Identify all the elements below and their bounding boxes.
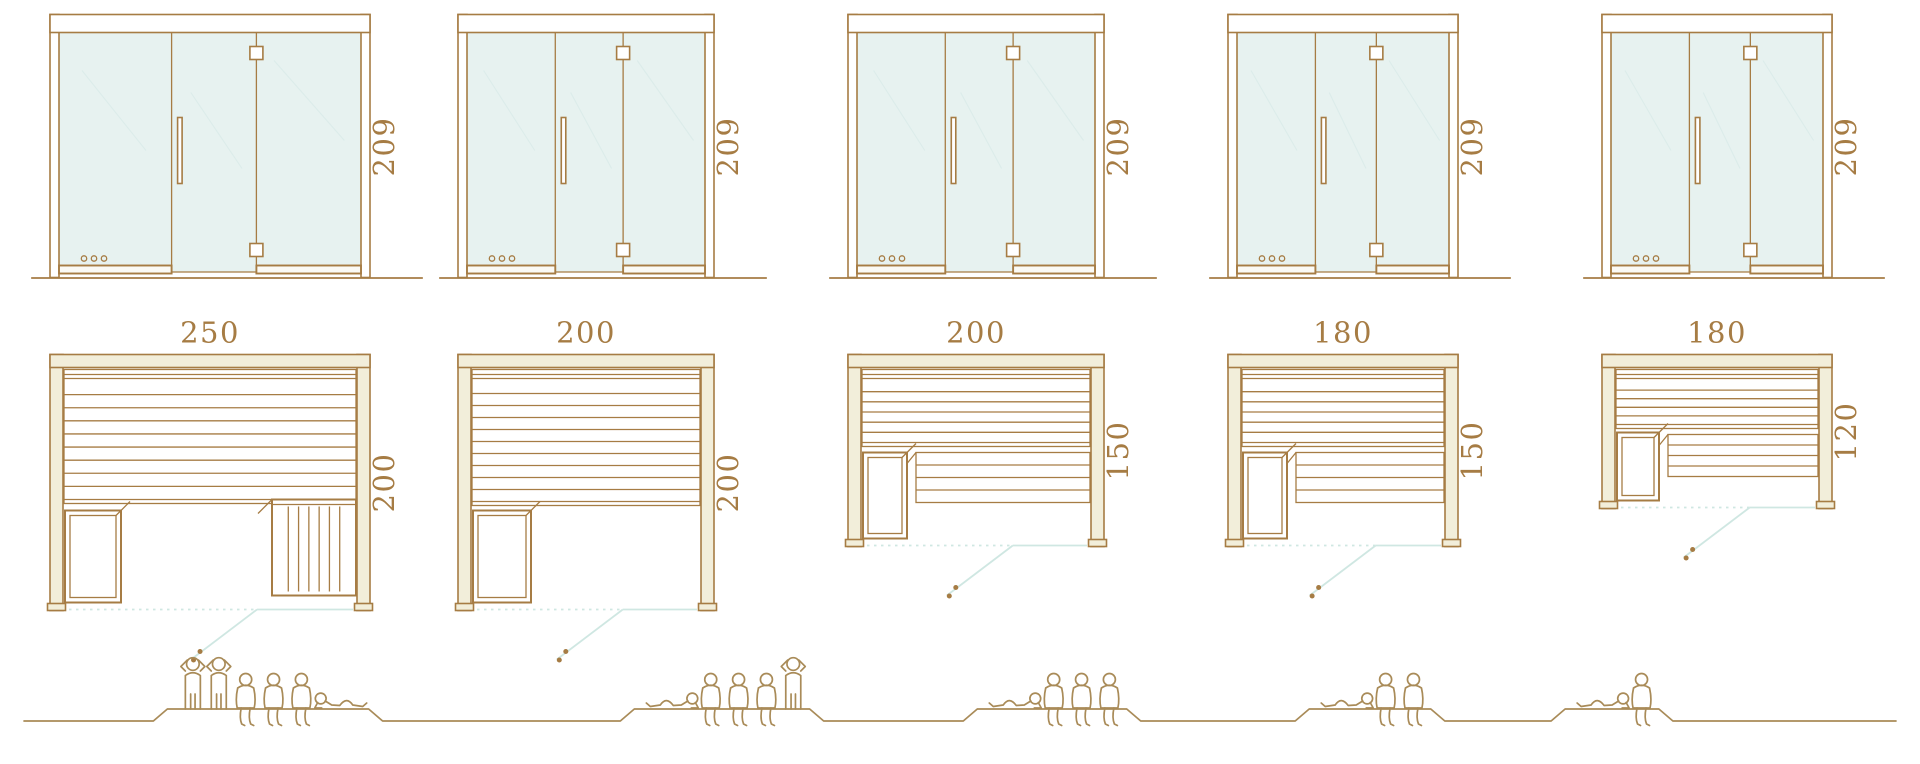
person-seated xyxy=(1072,674,1091,726)
person-seated xyxy=(1044,674,1063,726)
capacity-group xyxy=(989,674,1118,726)
person-reclining xyxy=(315,693,367,708)
person-seated xyxy=(1632,674,1651,726)
capacity-group xyxy=(181,658,367,726)
person-seated xyxy=(292,674,311,726)
person-seated xyxy=(701,674,720,726)
person-seated xyxy=(1404,674,1423,726)
person-reclining xyxy=(646,693,698,708)
person-seated xyxy=(1100,674,1119,726)
person-standing xyxy=(207,658,231,709)
capacity-group xyxy=(1577,674,1651,726)
capacity-group xyxy=(646,658,805,726)
person-standing xyxy=(781,658,805,709)
capacity-row xyxy=(0,0,1920,764)
person-reclining xyxy=(1321,693,1373,708)
sauna-size-comparison-diagram: 2092502002092002002092001502091801502091… xyxy=(0,0,1920,764)
person-reclining xyxy=(1577,693,1629,708)
person-seated xyxy=(729,674,748,726)
capacity-group xyxy=(1321,674,1423,726)
person-seated xyxy=(757,674,776,726)
person-reclining xyxy=(989,693,1041,708)
person-standing xyxy=(181,658,205,709)
person-seated xyxy=(236,674,255,726)
person-seated xyxy=(1376,674,1395,726)
person-seated xyxy=(264,674,283,726)
